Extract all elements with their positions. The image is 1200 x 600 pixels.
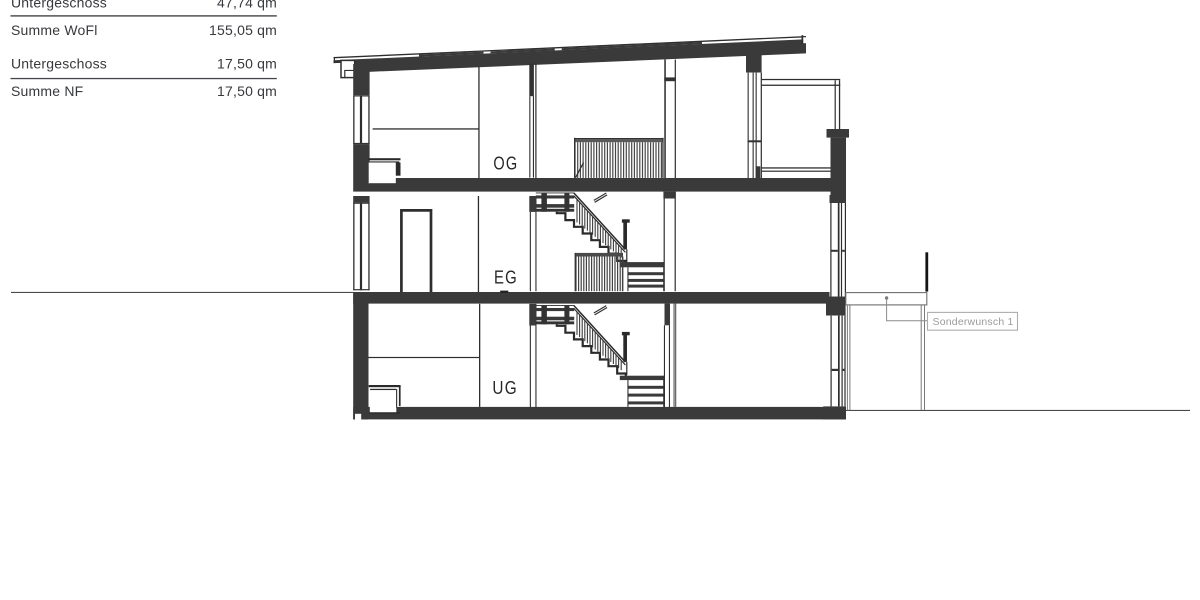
- svg-text:EG: EG: [494, 268, 518, 288]
- svg-text:Sonderwunsch 1: Sonderwunsch 1: [933, 316, 1014, 328]
- svg-text:Untergeschoss: Untergeschoss: [11, 0, 107, 11]
- svg-text:17,50 qm: 17,50 qm: [217, 83, 277, 99]
- svg-text:Untergeschoss: Untergeschoss: [11, 55, 107, 71]
- svg-text:Summe WoFl: Summe WoFl: [11, 22, 98, 38]
- svg-text:UG: UG: [492, 378, 518, 398]
- svg-text:17,50 qm: 17,50 qm: [217, 55, 277, 71]
- svg-text:155,05 qm: 155,05 qm: [209, 22, 277, 38]
- svg-text:OG: OG: [493, 153, 518, 173]
- svg-text:Summe NF: Summe NF: [11, 83, 83, 99]
- svg-text:47,74 qm: 47,74 qm: [217, 0, 277, 11]
